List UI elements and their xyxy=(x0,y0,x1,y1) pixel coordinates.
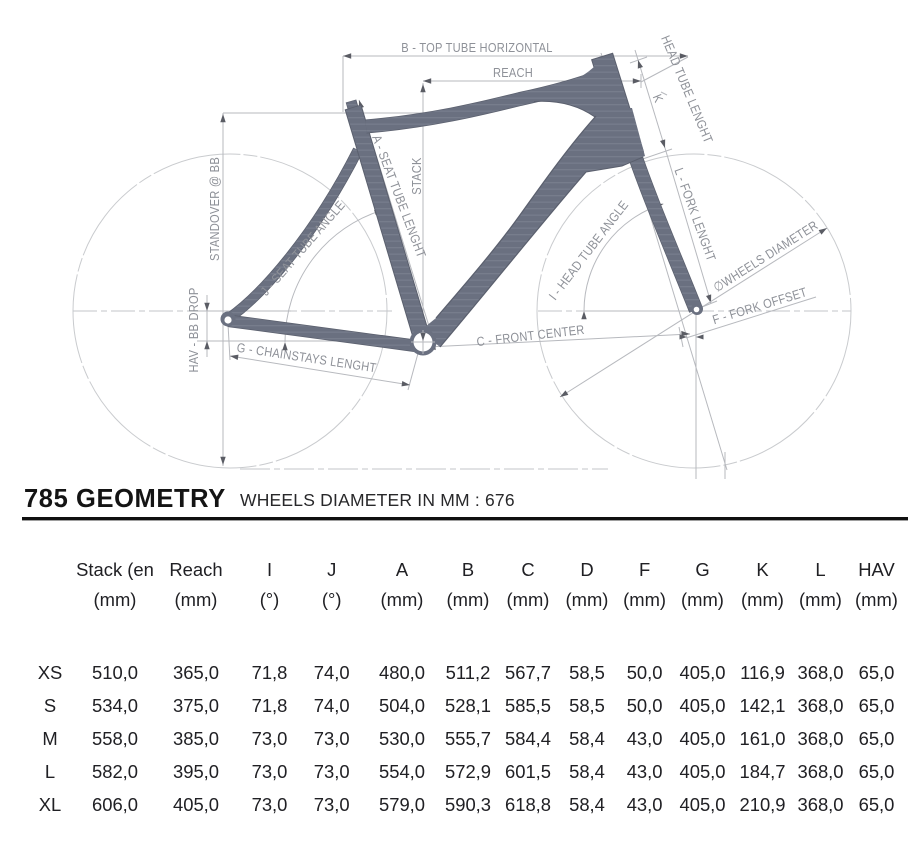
svg-text:785 GEOMETRY: 785 GEOMETRY xyxy=(24,485,226,513)
svg-text:B - TOP TUBE HORIZONTAL: B - TOP TUBE HORIZONTAL xyxy=(401,40,552,55)
svg-text:J - SEAT TUBE ANGLE: J - SEAT TUBE ANGLE xyxy=(258,198,348,299)
svg-text:L582,0395,073,073,0554,0572,96: L582,0395,073,073,0554,0572,9601,558,443… xyxy=(45,761,895,782)
svg-text:STANDOVER @ BB: STANDOVER @ BB xyxy=(207,157,222,261)
svg-text:G - CHAINSTAYS LENGHT: G - CHAINSTAYS LENGHT xyxy=(236,340,378,376)
svg-text:∅WHEELS DIAMETER: ∅WHEELS DIAMETER xyxy=(711,218,821,295)
svg-text:STACK: STACK xyxy=(409,157,424,194)
svg-text:WHEELS DIAMETER IN MM : 676: WHEELS DIAMETER IN MM : 676 xyxy=(240,490,515,510)
svg-text:I - HEAD TUBE ANGLE: I - HEAD TUBE ANGLE xyxy=(546,198,632,303)
svg-text:REACH: REACH xyxy=(493,65,533,80)
svg-text:(mm)(mm)(°)(°)(mm)(mm)(mm)(mm): (mm)(mm)(°)(°)(mm)(mm)(mm)(mm)(mm)(mm)(m… xyxy=(94,589,898,610)
svg-text:XS510,0365,071,874,0480,0511,2: XS510,0365,071,874,0480,0511,2567,758,55… xyxy=(38,662,895,683)
svg-text:Stack (enReachIJABCDFGKLHAV: Stack (enReachIJABCDFGKLHAV xyxy=(76,559,895,580)
svg-text:XL606,0405,073,073,0579,0590,3: XL606,0405,073,073,0579,0590,3618,858,44… xyxy=(39,794,895,815)
svg-text:HEAD TUBE LENGHT: HEAD TUBE LENGHT xyxy=(658,33,716,146)
svg-text:C - FRONT CENTER: C - FRONT CENTER xyxy=(476,322,586,349)
svg-text:M558,0385,073,073,0530,0555,75: M558,0385,073,073,0530,0555,7584,458,443… xyxy=(42,728,894,749)
svg-text:S534,0375,071,874,0504,0528,15: S534,0375,071,874,0504,0528,1585,558,550… xyxy=(44,695,895,716)
svg-text:HAV - BB DROP: HAV - BB DROP xyxy=(186,287,201,372)
